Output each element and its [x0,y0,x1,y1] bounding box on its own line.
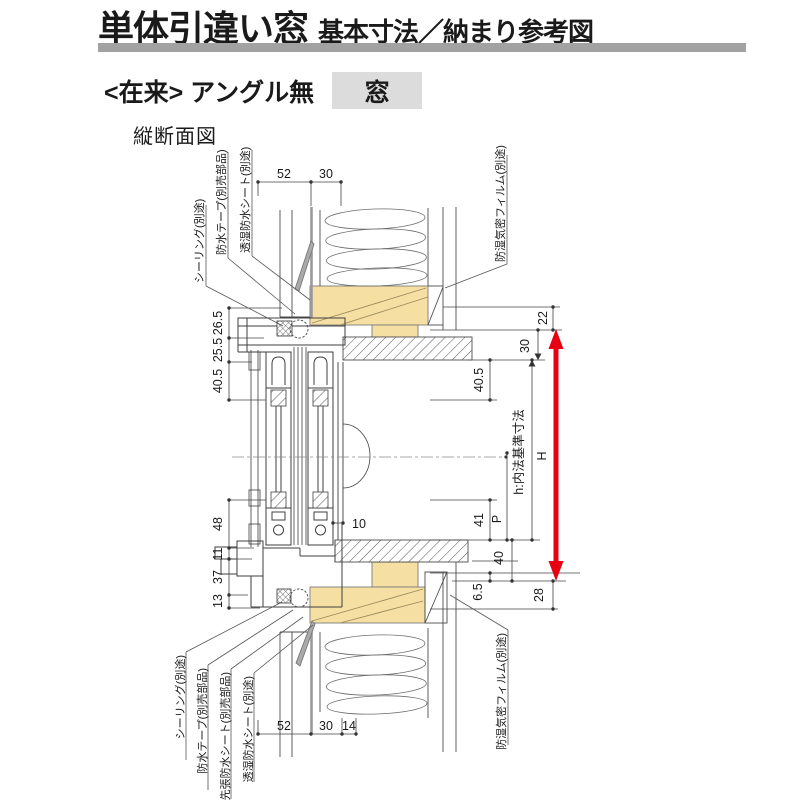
dim-right-41: 41 [472,513,486,527]
dimension-lines [229,182,580,734]
dim-top-30: 30 [319,167,333,181]
sill-casing-hatch [335,540,468,562]
label-sealing-top: シーリング(別途) [192,199,206,283]
backer-rod-top [290,320,308,338]
sash-outer [266,352,291,545]
label-breathable-sheet-top: 透湿防水シート(別途) [238,147,252,253]
dim-left-40-5: 40.5 [211,369,225,393]
label-sealing-bottom: シーリング(別途) [173,655,187,739]
wood-blocks [310,286,428,623]
dim-bottom-30: 30 [319,719,333,733]
dim-inner-10: 10 [352,517,366,531]
label-waterproof-tape-top: 防水テープ(別売部品) [214,149,228,255]
dim-left-37: 37 [211,570,225,584]
dim-right-40: 40 [492,551,506,565]
backer-rod-bottom [290,589,308,607]
insulation-bottom [325,633,428,715]
leader-lines [186,150,508,799]
page: { "page": { "title_main": "単体引違い窓", "tit… [0,0,800,800]
annotation-labels: シーリング(別途) 防水テープ(別売部品) 透湿防水シート(別途) 防湿気密フィ… [173,145,508,800]
sash-inner [308,352,333,545]
meeting-stiles [294,347,306,545]
dim-left-13: 13 [211,594,225,608]
label-vapor-film-bottom: 防湿気密フィルム(別途) [494,633,508,750]
dim-right-40-5: 40.5 [472,368,486,392]
dim-top-52: 52 [277,167,291,181]
section-drawing: 52 30 52 30 14 26.5 25.5 40.5 48 11 37 1… [0,0,800,800]
label-vapor-film-top: 防湿気密フィルム(別途) [493,145,507,262]
dim-right-28: 28 [532,588,546,602]
dim-right-6-5: 6.5 [471,583,485,600]
label-waterproof-tape-bottom: 防水テープ(別売部品) [195,668,209,774]
sealing-bottom [277,589,291,603]
insect-screen [249,350,260,547]
dim-right-h-label: h:内法基準寸法 [511,409,526,494]
label-pre-applied-sheet-bottom: 先張防水シート(別売部品) [218,672,232,800]
dim-right-30: 30 [518,339,532,353]
interior-casing [338,362,370,540]
dim-left-25-5: 25.5 [211,338,225,362]
insulation-top [325,207,428,287]
dim-right-H: H [535,451,549,460]
dim-left-26-5: 26.5 [211,311,225,335]
dim-bottom-14: 14 [342,719,356,733]
h-arrow [549,329,564,581]
dim-right-p: P [490,515,504,523]
dim-left-48: 48 [211,517,225,531]
label-breathable-sheet-bottom: 透湿防水シート(別途) [241,676,255,782]
lintel-casing-hatch [343,337,472,360]
dim-bottom-52: 52 [277,719,291,733]
dim-left-11: 11 [211,547,225,560]
dim-right-22: 22 [536,311,550,325]
